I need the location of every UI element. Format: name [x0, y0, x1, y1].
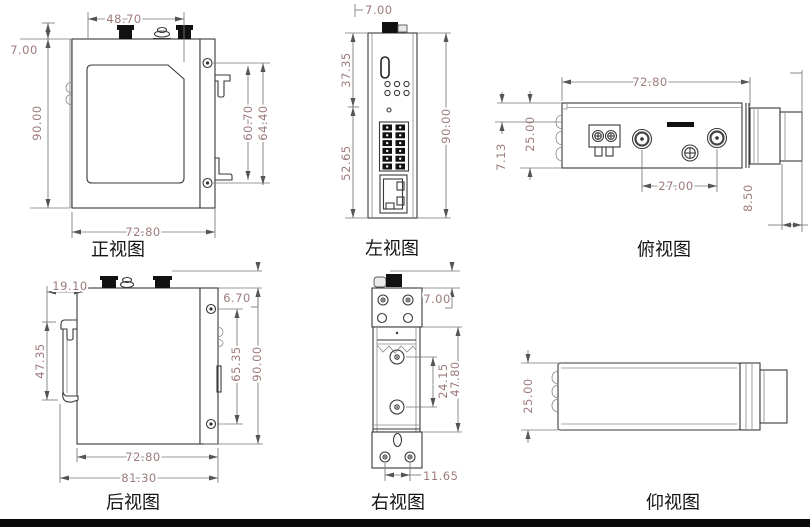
svg-text:47.80: 47.80: [448, 361, 462, 396]
dim-front-width: 72.80: [72, 208, 215, 239]
side-connector-bumps: [218, 327, 223, 347]
antenna-connector: [176, 25, 193, 39]
svg-text:64.40: 64.40: [256, 105, 270, 140]
ethernet-port: [380, 175, 407, 213]
right-view-label: 右视图: [371, 493, 425, 514]
rear-view: 19.10 47.35 6.70 65.35 90.00: [33, 262, 264, 514]
antenna-connector: [382, 22, 407, 33]
svg-text:65.35: 65.35: [229, 346, 243, 381]
antenna-port: [633, 130, 652, 149]
din-clip-upper-hook: [215, 75, 230, 97]
antenna-port: [708, 129, 727, 148]
dim-bottom-depth: 25.00: [521, 350, 558, 443]
svg-text:81.30: 81.30: [121, 471, 156, 485]
vent-dome: [121, 278, 134, 288]
dim-left-top-offset: 7.00: [355, 3, 393, 17]
svg-text:27.00: 27.00: [658, 179, 693, 193]
din-rail-channel: [373, 327, 420, 432]
sim-slot: [667, 122, 694, 127]
svg-text:25.00: 25.00: [521, 378, 535, 413]
rear-view-label: 后视图: [106, 493, 160, 514]
side-connector-bumps: [552, 371, 558, 412]
dim-left-upper: 37.35: [339, 33, 368, 107]
svg-text:47.35: 47.35: [33, 343, 47, 378]
svg-text:90.00: 90.00: [439, 108, 453, 143]
svg-text:7.13: 7.13: [494, 143, 508, 171]
svg-text:90.00: 90.00: [30, 105, 44, 140]
footer-bar: [0, 519, 810, 527]
front-view-label: 正视图: [91, 240, 145, 261]
svg-text:37.35: 37.35: [339, 52, 353, 87]
din-clip-section: [750, 108, 780, 164]
dim-rear-width: 72.80: [77, 448, 218, 464]
bottom-view-label: 仰视图: [646, 493, 700, 514]
svg-text:60.70: 60.70: [241, 105, 255, 140]
drawing-canvas: 48.70 7.00 90.00 60.70 64.40 72.80 正视: [0, 0, 810, 527]
svg-text:90.00: 90.00: [250, 346, 264, 381]
svg-text:72.80: 72.80: [125, 450, 160, 464]
svg-text:6.70: 6.70: [223, 291, 251, 305]
svg-text:72.80: 72.80: [632, 75, 667, 89]
top-view: 72.80 25.00 7.13 27.00 8: [494, 70, 808, 261]
usb-c-port: [381, 57, 389, 78]
rear-body: [77, 288, 200, 444]
din-clip-end: [780, 112, 802, 161]
din-clip: [61, 320, 78, 402]
dim-rear-clip-height: 47.35: [33, 322, 58, 400]
antenna-connector: [100, 276, 118, 288]
top-view-label: 俯视图: [637, 240, 691, 261]
bottom-view: 25.00 仰视图: [521, 350, 787, 514]
vent-dome: [153, 28, 171, 39]
svg-text:7.00: 7.00: [423, 292, 451, 306]
front-view: 48.70 7.00 90.00 60.70 64.40 72.80 正视: [10, 12, 270, 261]
svg-text:19.10: 19.10: [52, 279, 87, 293]
engineering-drawing-sheet: 48.70 7.00 90.00 60.70 64.40 72.80 正视: [0, 0, 810, 527]
din-clip-band: [740, 363, 760, 430]
antenna-connector: [153, 276, 172, 288]
dim-front-height: 90.00: [30, 39, 70, 208]
left-view: 7.00 37.35 52.65 90.00 左视图: [339, 3, 453, 260]
svg-text:11.65: 11.65: [423, 469, 458, 483]
svg-text:52.65: 52.65: [339, 145, 353, 180]
dim-top-width: 72.80: [562, 75, 750, 106]
bottom-body: [558, 363, 740, 430]
ground-screw: [682, 145, 698, 161]
antenna-nub: [374, 277, 386, 287]
dim-left-height: 90.00: [417, 33, 453, 218]
terminal-block: [380, 122, 409, 171]
left-view-label: 左视图: [365, 239, 419, 260]
svg-text:48.70: 48.70: [106, 12, 141, 26]
din-clip-lower-hook: [215, 158, 232, 180]
dim-left-lower: 52.65: [339, 107, 368, 218]
dim-front-top-offset: 7.00: [10, 23, 71, 57]
svg-text:7.00: 7.00: [365, 3, 393, 17]
right-bottom-plate: [372, 432, 422, 468]
antenna-connector: [117, 25, 134, 39]
right-view: 7.00 24.15 47.80 11.65 右视图: [371, 262, 462, 514]
svg-text:7.00: 7.00: [10, 43, 38, 57]
antenna-connector: [386, 274, 402, 287]
svg-text:72.80: 72.80: [125, 225, 160, 239]
front-label-sticker: [87, 65, 184, 183]
svg-text:8.50: 8.50: [741, 184, 755, 212]
